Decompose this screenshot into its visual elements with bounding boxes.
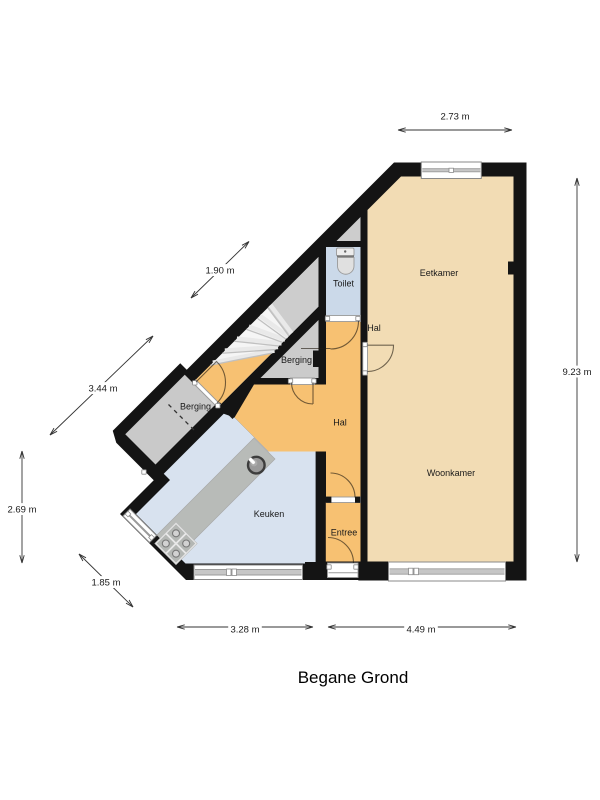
svg-text:Entree: Entree [331,528,358,538]
svg-text:Berging: Berging [180,402,211,412]
svg-text:Woonkamer: Woonkamer [427,468,475,478]
svg-text:9.23 m: 9.23 m [562,367,591,378]
svg-text:1.90 m: 1.90 m [205,265,234,276]
svg-text:Begane Grond: Begane Grond [298,668,409,687]
svg-text:1.85 m: 1.85 m [91,577,120,588]
svg-text:2.69 m: 2.69 m [7,504,36,515]
svg-text:Hal: Hal [333,418,347,428]
svg-text:3.28 m: 3.28 m [230,624,259,635]
svg-text:Eetkamer: Eetkamer [420,268,459,278]
svg-text:2.73 m: 2.73 m [440,111,469,122]
svg-text:Keuken: Keuken [254,509,285,519]
svg-text:Berging: Berging [281,355,312,365]
svg-text:4.49 m: 4.49 m [406,624,435,635]
svg-text:Hal: Hal [367,323,381,333]
svg-text:3.44 m: 3.44 m [88,383,117,394]
svg-text:Toilet: Toilet [333,279,355,289]
